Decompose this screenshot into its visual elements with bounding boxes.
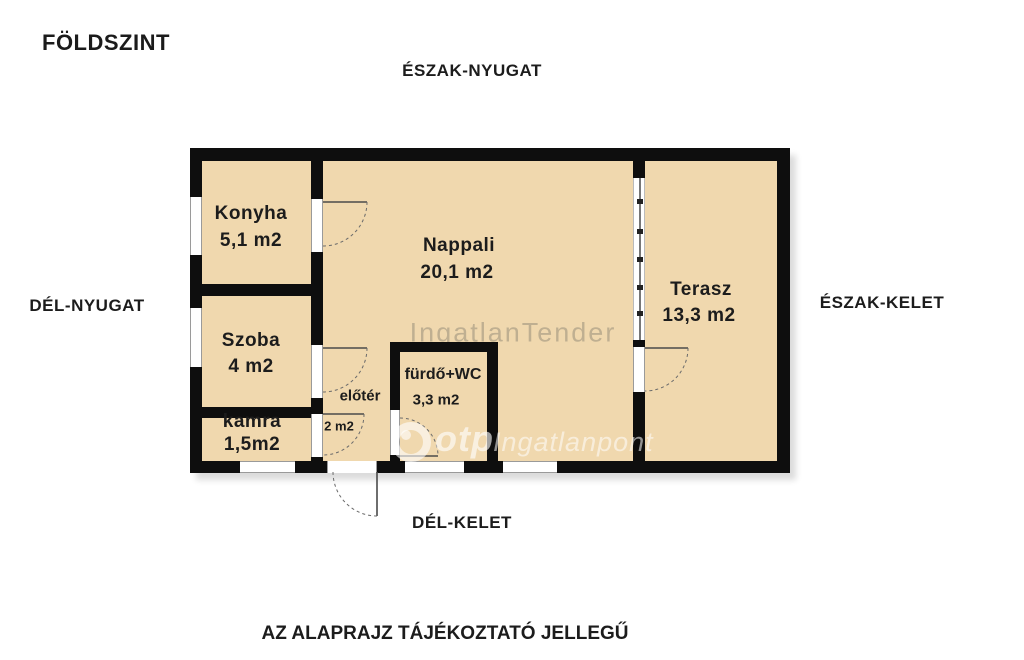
floorplan-canvas: FÖLDSZINT ÉSZAK-NYUGAT DÉL-NYUGAT ÉSZAK-… bbox=[0, 0, 1024, 660]
room-name-szoba: Szoba bbox=[222, 330, 280, 352]
room-name-terasz: Terasz bbox=[670, 279, 732, 301]
otp-logo-icon bbox=[391, 422, 431, 462]
door-arc-szoba bbox=[323, 348, 367, 392]
watermark-otp-text: otp bbox=[435, 418, 494, 460]
room-area-terasz: 13,3 m2 bbox=[662, 305, 735, 327]
room-name-konyha: Konyha bbox=[215, 203, 288, 225]
room-name-kamra: kamra bbox=[223, 411, 282, 433]
room-name-furdo: fürdő+WC bbox=[405, 366, 482, 384]
room-name-eloter: előtér bbox=[340, 388, 381, 405]
room-area-eloter: 2 m2 bbox=[324, 419, 354, 434]
otp-logo-dot bbox=[401, 430, 411, 440]
door-arc-entrance bbox=[333, 472, 377, 516]
door-symbols-layer bbox=[0, 0, 1024, 660]
room-area-kamra: 1,5m2 bbox=[224, 434, 280, 456]
watermark-otp-ingatlanpont: otp Ingatlanpont bbox=[383, 418, 653, 464]
door-arc-konyha bbox=[323, 202, 367, 246]
room-area-szoba: 4 m2 bbox=[228, 356, 273, 378]
door-arc-terasz bbox=[645, 348, 688, 391]
room-area-furdo: 3,3 m2 bbox=[413, 392, 460, 409]
room-name-nappali: Nappali bbox=[423, 235, 495, 257]
room-area-nappali: 20,1 m2 bbox=[420, 262, 493, 284]
watermark-ingatlanpont-text: Ingatlanpont bbox=[493, 427, 654, 458]
room-area-konyha: 5,1 m2 bbox=[220, 230, 282, 252]
